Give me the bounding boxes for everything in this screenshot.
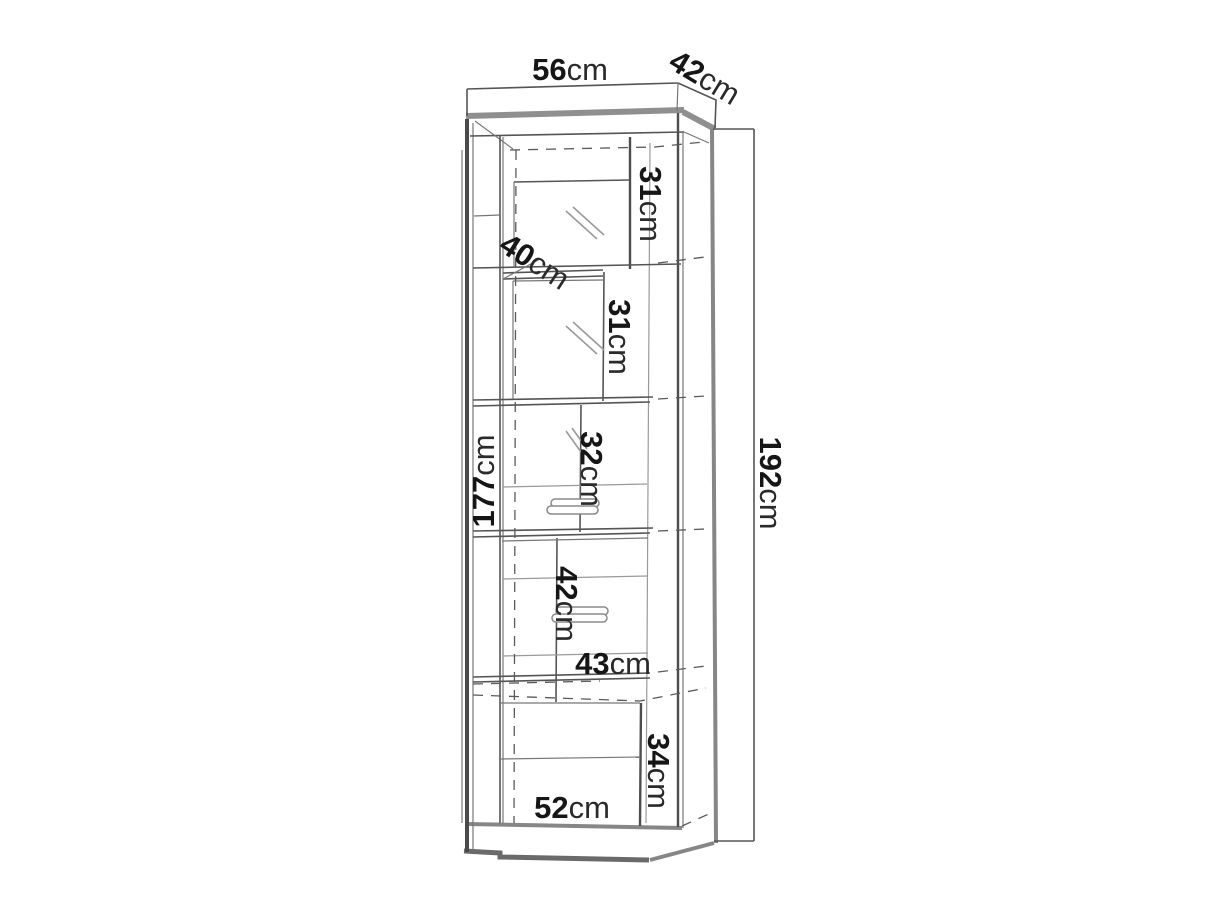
dim-label-upper-shelf-1: 31cm	[634, 166, 669, 242]
dim-label-top-width: 56cm	[532, 52, 608, 87]
dim-label-upper-shelf-2: 31cm	[603, 299, 638, 375]
dim-label-interior-height: 177cm	[466, 434, 501, 527]
diagram-page: 56cm 42cm 31cm 40cm 31cm 32cm 177cm 192c…	[0, 0, 1210, 908]
glass-door-panes	[513, 182, 604, 452]
dim-label-top-depth: 42cm	[663, 42, 746, 111]
glass-reflection-marks	[566, 207, 604, 452]
dim-label-total-height: 192cm	[754, 436, 789, 529]
dim-label-lower-door-height: 42cm	[550, 566, 585, 642]
cabinet-dimension-diagram: 56cm 42cm 31cm 40cm 31cm 32cm 177cm 192c…	[0, 0, 1210, 908]
dim-label-lower-door-width: 43cm	[575, 646, 651, 681]
dim-label-base-width: 52cm	[534, 790, 610, 825]
dim-label-glass-door-width: 40cm	[494, 226, 577, 297]
dimension-labels: 56cm 42cm 31cm 40cm 31cm 32cm 177cm 192c…	[466, 42, 789, 824]
dim-label-middle-shelf: 32cm	[575, 431, 610, 507]
dim-label-base-height: 34cm	[642, 733, 677, 809]
